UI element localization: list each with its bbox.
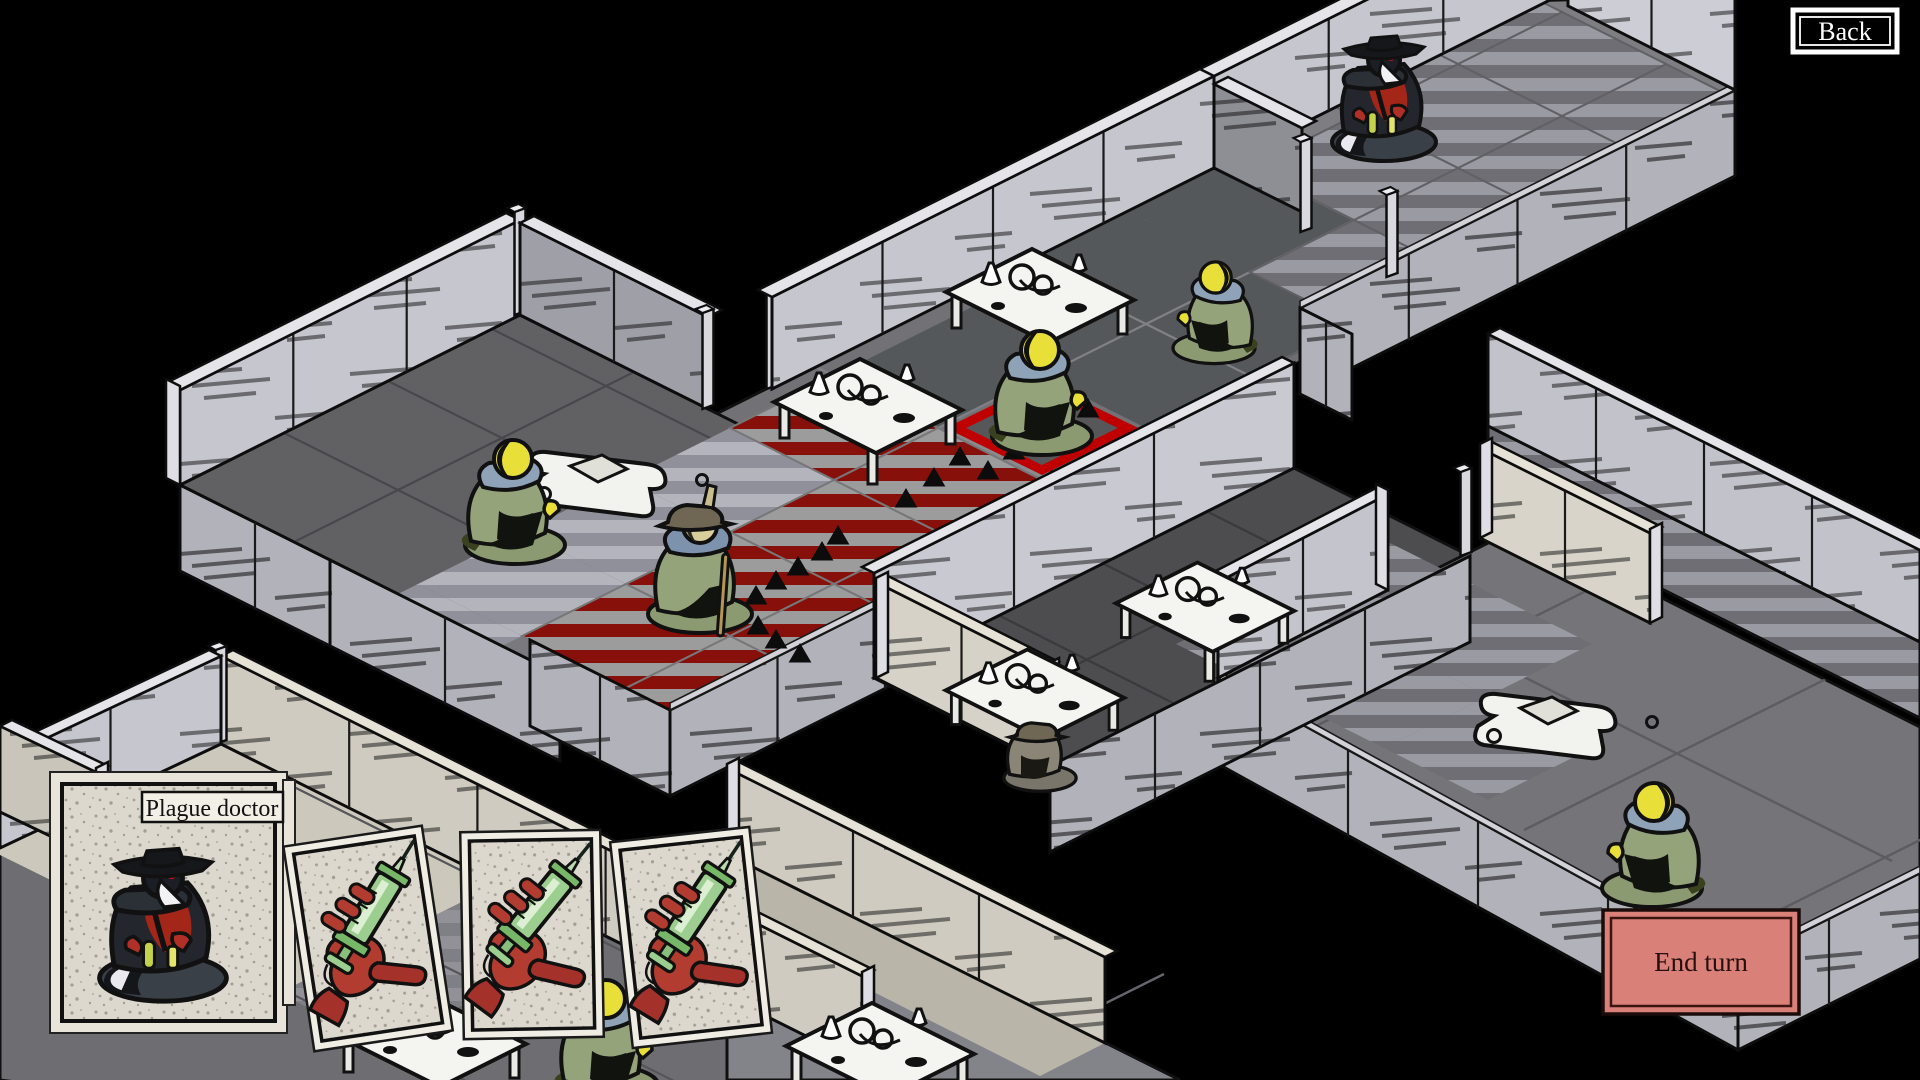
- svg-text:End turn: End turn: [1654, 947, 1748, 977]
- svg-text:Back: Back: [1818, 17, 1871, 46]
- svg-text:Plague doctor: Plague doctor: [146, 796, 279, 822]
